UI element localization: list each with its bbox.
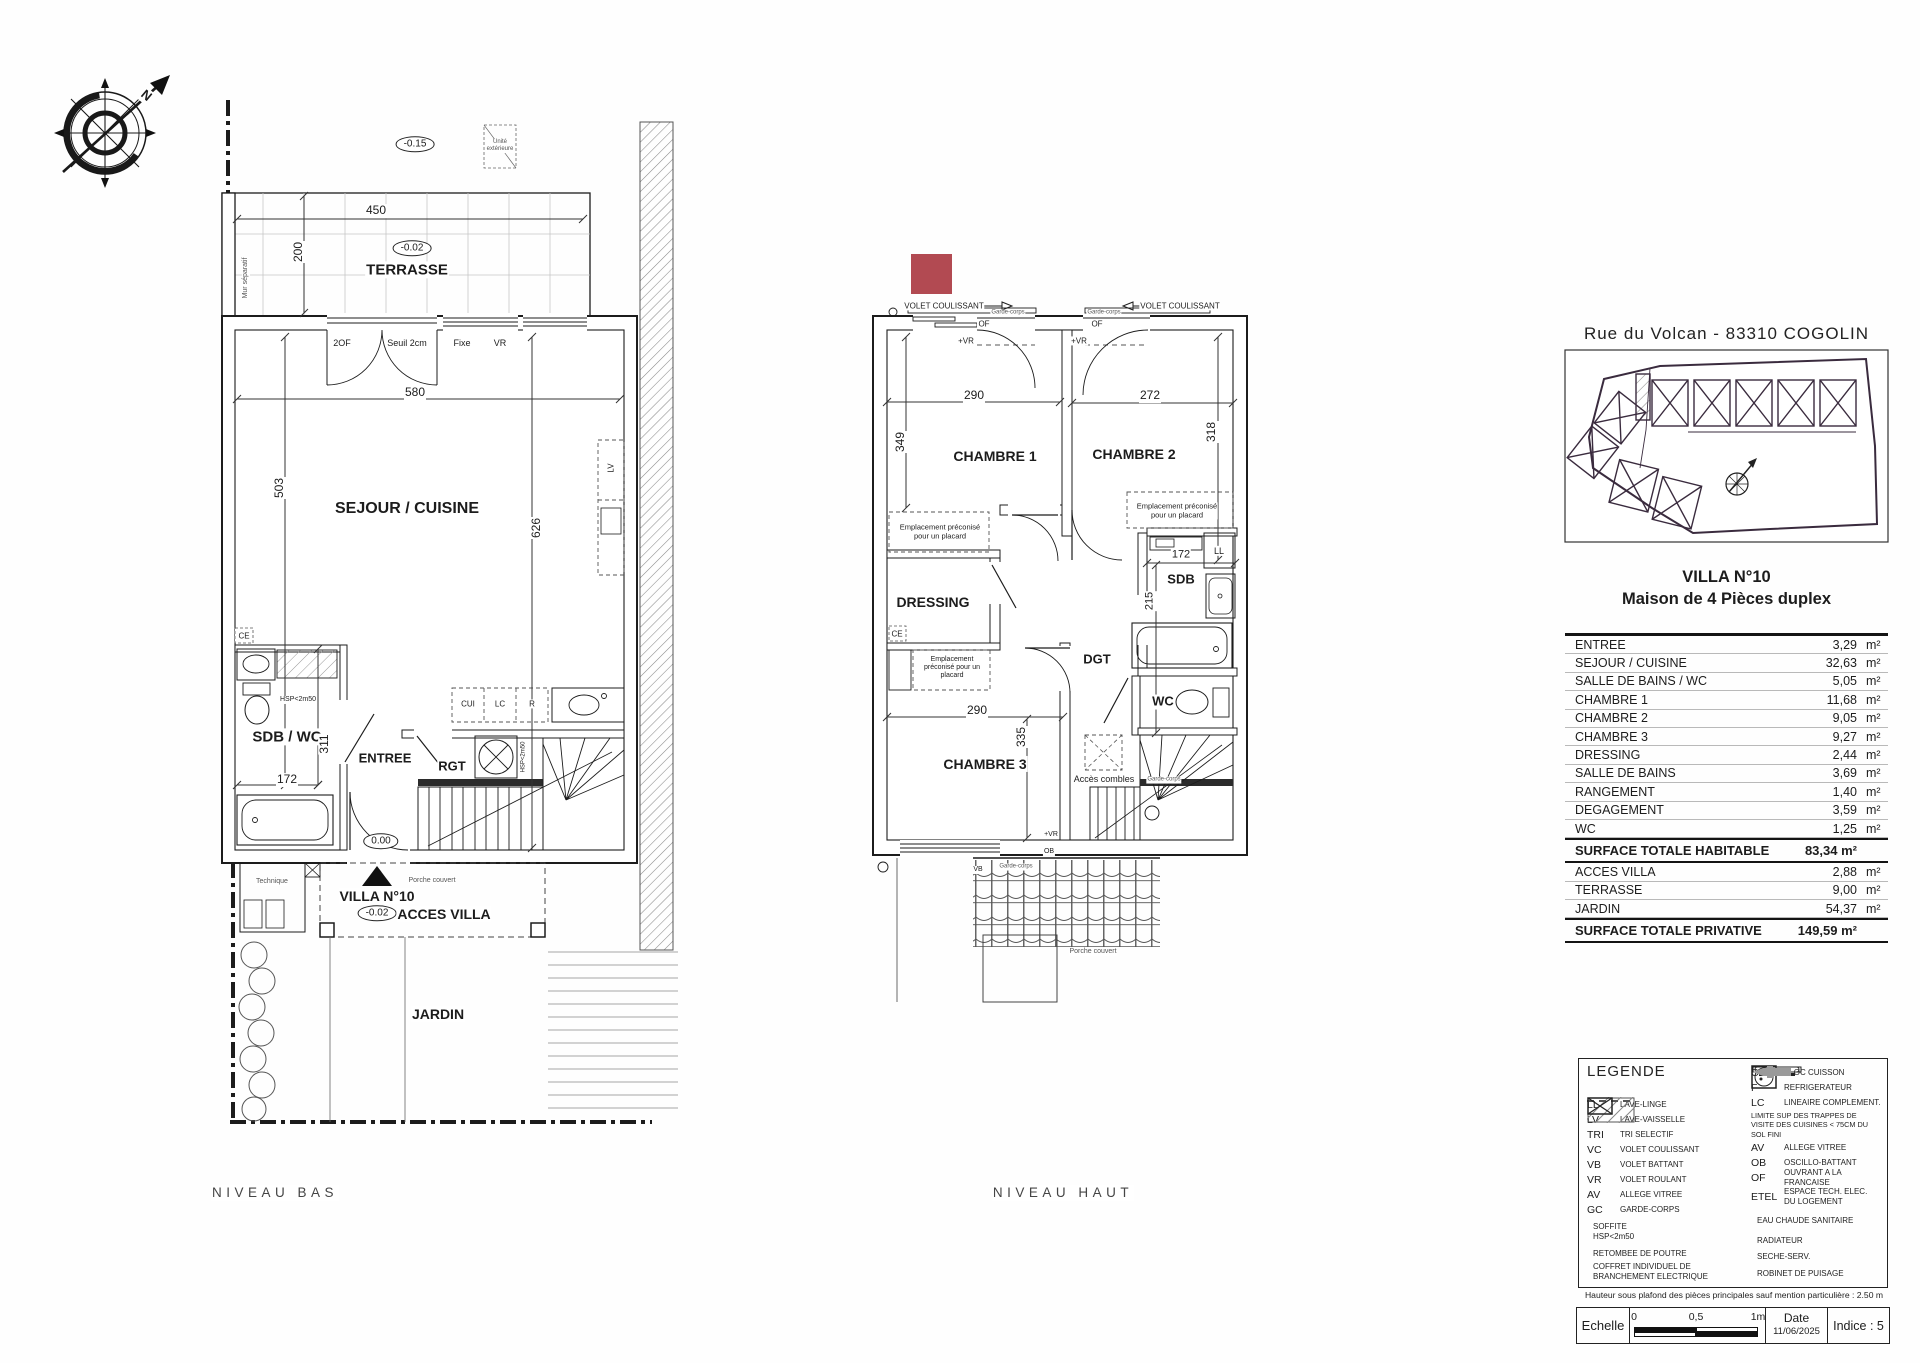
dim-label: 335 <box>1015 726 1029 748</box>
area-row: TERRASSE9,00m² <box>1565 882 1888 900</box>
scale-ruler-bar <box>1634 1327 1758 1338</box>
note-garde-corps: Garde-corps <box>990 310 1025 317</box>
opening-label: OF <box>1090 319 1103 328</box>
dim-label: 318 <box>1205 421 1219 443</box>
legend-note: LIMITE SUP DES TRAPPES DE VISITE DES CUI… <box>1751 1110 1885 1140</box>
dim-label: 215 <box>1144 591 1157 611</box>
opening-label: VB <box>972 866 983 874</box>
legend-item: COFFRET INDIVIDUEL DE BRANCHEMENT ELECTR… <box>1587 1261 1745 1283</box>
legend-desc: VOLET BATTANT <box>1620 1160 1684 1170</box>
legend-item: ROBINET DE PUISAGE <box>1751 1265 1885 1283</box>
opening-label: +VR <box>1070 336 1088 345</box>
legend-code: ETEL <box>1751 1191 1784 1203</box>
room-sdb-wc: SDB / WC <box>251 728 322 745</box>
legend-desc: ALLEGE VITREE <box>1784 1143 1846 1153</box>
legend-code: OF <box>1751 1172 1784 1184</box>
legend-code: AV <box>1751 1142 1784 1154</box>
legend-desc: VOLET COULISSANT <box>1620 1145 1699 1155</box>
room-wc: WC <box>1151 695 1175 710</box>
legend-desc: EAU CHAUDE SANITAIRE <box>1757 1216 1853 1226</box>
legend-item: ETELESPACE TECH. ELEC. DU LOGEMENT <box>1751 1185 1885 1209</box>
legend-desc: ROBINET DE PUISAGE <box>1757 1269 1844 1279</box>
legend-desc: ESPACE TECH. ELEC. DU LOGEMENT <box>1784 1187 1867 1206</box>
legend-desc: VOLET ROULANT <box>1620 1175 1687 1185</box>
elevation-marker: -0.15 <box>396 136 435 152</box>
dim-label: 172 <box>1171 549 1191 562</box>
area-row: JARDIN54,37m² <box>1565 900 1888 918</box>
note-garde-corps: Garde-corps <box>998 864 1033 871</box>
caption-niveau-haut: NIVEAU HAUT <box>992 1185 1134 1201</box>
legend-code: VR <box>1587 1174 1620 1186</box>
legend-item: RADIATEUR <box>1751 1233 1885 1249</box>
indice-label: Indice : 5 <box>1828 1308 1889 1343</box>
area-row: DEGAGEMENT3,59m² <box>1565 802 1888 820</box>
dim-label: 200 <box>292 241 306 263</box>
dim-label: 311 <box>318 733 332 754</box>
legend-code: TRI <box>1587 1129 1620 1141</box>
caption-niveau-bas: NIVEAU BAS <box>211 1185 339 1201</box>
note-hsp: HSP<2m50 <box>521 741 528 774</box>
opening-label: VOLET COULISSANT <box>1139 301 1220 310</box>
room-terrasse: TERRASSE <box>365 261 449 278</box>
scale-ruler: 00,51m <box>1630 1308 1766 1343</box>
area-row: ACCES VILLA2,88m² <box>1565 863 1888 881</box>
area-row: CHAMBRE 39,27m² <box>1565 728 1888 746</box>
legend-desc: GARDE-CORPS <box>1620 1205 1680 1215</box>
note-garde-corps: Garde-corps <box>1146 777 1181 784</box>
area-row: SALLE DE BAINS3,69m² <box>1565 765 1888 783</box>
note-technique: Technique <box>255 878 289 886</box>
date-cell: Date 11/06/2025 <box>1766 1308 1828 1343</box>
ceiling-height-note: Hauteur sous plafond des pièces principa… <box>1578 1290 1890 1300</box>
legend-item: SOFFITE HSP<2m50 <box>1587 1217 1745 1247</box>
room-sejour-cuisine: SEJOUR / CUISINE <box>334 500 480 518</box>
dim-label: 272 <box>1139 389 1161 403</box>
fixture-label: LC <box>494 699 506 708</box>
legend-item: SECHE-SERV. <box>1751 1249 1885 1265</box>
legend-item: LCLINEAIRE COMPLEMENT. <box>1751 1095 1885 1110</box>
note-porche: Porche couvert <box>1068 948 1117 956</box>
legend-code: VB <box>1587 1159 1620 1171</box>
legend-desc: TRI SELECTIF <box>1620 1130 1673 1140</box>
fixture-label: CE <box>890 629 903 638</box>
legend-item: VCVOLET COULISSANT <box>1587 1142 1745 1157</box>
area-row: SEJOUR / CUISINE32,63m² <box>1565 654 1888 672</box>
villa-entrance-label: VILLA N°10 <box>338 888 415 904</box>
area-table: ENTREE3,29m²SEJOUR / CUISINE32,63m²SALLE… <box>1565 633 1888 943</box>
opening-label: Seuil 2cm <box>386 338 428 348</box>
legend-desc: OUVRANT A LA FRANCAISE <box>1784 1168 1885 1187</box>
legend-item: AVALLEGE VITREE <box>1751 1140 1885 1155</box>
legend-code: VC <box>1587 1144 1620 1156</box>
scale-label: Echelle <box>1577 1308 1630 1343</box>
plan-niveau-haut <box>873 302 1247 1002</box>
dim-label: 349 <box>894 431 908 453</box>
legend-item: GCGARDE-CORPS <box>1587 1202 1745 1217</box>
scale-bar: Echelle 00,51m Date 11/06/2025 Indice : … <box>1576 1307 1890 1344</box>
room-rgt: RGT <box>437 760 466 775</box>
legend-box: LEGENDE LLLAVE-LINGELVLAVE-VAISSELLETRIT… <box>1578 1058 1888 1288</box>
legend-desc: OSCILLO-BATTANT <box>1784 1158 1857 1168</box>
opening-label: 2OF <box>332 338 352 348</box>
legend-code: AV <box>1587 1189 1620 1201</box>
site-address: Rue du Volcan - 83310 COGOLIN <box>1565 324 1888 344</box>
room-sdb: SDB <box>1166 573 1195 588</box>
legend-item: VBVOLET BATTANT <box>1587 1157 1745 1172</box>
opening-label: OB <box>1043 848 1055 856</box>
legend-desc: SECHE-SERV. <box>1757 1252 1810 1262</box>
legend-desc: COFFRET INDIVIDUEL DE BRANCHEMENT ELECTR… <box>1593 1262 1708 1281</box>
note-placard: Emplacement préconisé pour un placard <box>1136 502 1218 519</box>
room-chambre-2: CHAMBRE 2 <box>1091 446 1176 462</box>
scale-tick: 0 <box>1631 1311 1637 1323</box>
legend-item: AVALLEGE VITREE <box>1587 1187 1745 1202</box>
date-value: 11/06/2025 <box>1766 1326 1827 1337</box>
blueprint-page: N-0.15450200-0.02TERRASSEMur séparatifUn… <box>0 0 1920 1363</box>
area-row: WC1,25m² <box>1565 820 1888 838</box>
scale-tick: 0,5 <box>1689 1311 1704 1323</box>
opening-label: OF <box>977 319 990 328</box>
dim-label: 290 <box>966 704 988 718</box>
room-dressing: DRESSING <box>895 594 970 610</box>
legend-column-right: CUIBLOC CUISSONFREFRIGERATEURLCLINEAIRE … <box>1751 1065 1885 1283</box>
legend-code: GC <box>1587 1204 1620 1216</box>
note-garde-corps: Garde-corps <box>1086 310 1121 317</box>
area-row: ENTREE3,29m² <box>1565 636 1888 654</box>
area-total-row: SURFACE TOTALE PRIVATIVE149,59 m² <box>1565 918 1888 943</box>
opening-label: +VR <box>957 336 975 345</box>
legend-column-left: LLLAVE-LINGELVLAVE-VAISSELLETRITRI SELEC… <box>1587 1097 1745 1283</box>
opening-label: +VR <box>1043 831 1059 839</box>
area-row: SALLE DE BAINS / WC5,05m² <box>1565 673 1888 691</box>
room-acces-villa: ACCES VILLA <box>396 906 491 922</box>
legend-code: LC <box>1751 1097 1784 1109</box>
dim-label: 503 <box>273 477 287 499</box>
note-hsp: HSP<2m50 <box>279 696 317 704</box>
fixture-label: LV <box>606 462 615 473</box>
dim-label: 626 <box>530 517 544 539</box>
opening-label: VR <box>493 338 508 348</box>
elevation-marker: -0.02 <box>358 905 397 921</box>
red-marker <box>911 254 952 294</box>
room-chambre-3: CHAMBRE 3 <box>942 756 1027 772</box>
room-entree: ENTREE <box>358 752 413 767</box>
fixture-label: LL <box>1213 546 1225 556</box>
dim-label: 450 <box>365 204 387 218</box>
legend-desc: ALLEGE VITREE <box>1620 1190 1682 1200</box>
legend-item: TRITRI SELECTIF <box>1587 1127 1745 1142</box>
note-placard: Emplacement préconisé pour un placard <box>923 656 981 680</box>
note-placard: Emplacement préconisé pour un placard <box>899 523 981 540</box>
room-dgt: DGT <box>1082 653 1111 668</box>
elevation-marker: 0.00 <box>363 833 398 849</box>
area-row: CHAMBRE 29,05m² <box>1565 710 1888 728</box>
legend-desc: SOFFITE HSP<2m50 <box>1593 1222 1634 1241</box>
legend-code: OB <box>1751 1157 1784 1169</box>
opening-label: Fixe <box>452 338 471 348</box>
legend-item: VRVOLET ROULANT <box>1587 1172 1745 1187</box>
fixture-label: CUI <box>460 699 476 708</box>
fixture-label: R <box>528 699 536 708</box>
legend-item: RETOMBEE DE POUTRE <box>1587 1247 1745 1261</box>
area-total-row: SURFACE TOTALE HABITABLE83,34 m² <box>1565 838 1888 863</box>
legend-item: EAU CHAUDE SANITAIRE <box>1751 1209 1885 1233</box>
opening-label: VOLET COULISSANT <box>903 301 984 310</box>
note-acces-combles: Accès combles <box>1073 774 1136 784</box>
legend-desc: REFRIGERATEUR <box>1784 1083 1852 1093</box>
fixture-label: CE <box>237 631 250 640</box>
legend-desc: RETOMBEE DE POUTRE <box>1593 1249 1687 1259</box>
note-mur-separatif: Mur séparatif <box>242 257 250 300</box>
note-unite-exterieure: Unité extérieure <box>486 139 515 153</box>
dim-label: 290 <box>963 389 985 403</box>
elevation-marker: -0.02 <box>393 240 432 256</box>
villa-title: VILLA N°10 <box>1565 568 1888 587</box>
dim-label: 580 <box>404 386 426 400</box>
date-label: Date <box>1766 1311 1827 1325</box>
dim-label: 172 <box>276 773 298 787</box>
area-row: RANGEMENT1,40m² <box>1565 783 1888 801</box>
legend-item: OFOUVRANT A LA FRANCAISE <box>1751 1170 1885 1185</box>
room-jardin: JARDIN <box>411 1006 465 1022</box>
room-chambre-1: CHAMBRE 1 <box>952 448 1037 464</box>
scale-tick: 1m <box>1751 1311 1766 1323</box>
legend-desc: LINEAIRE COMPLEMENT. <box>1784 1098 1880 1108</box>
site-map <box>1565 350 1888 542</box>
villa-subtitle: Maison de 4 Pièces duplex <box>1565 590 1888 609</box>
area-row: DRESSING2,44m² <box>1565 746 1888 764</box>
area-row: CHAMBRE 111,68m² <box>1565 691 1888 709</box>
legend-desc: RADIATEUR <box>1757 1236 1803 1246</box>
legend-title: LEGENDE <box>1587 1063 1666 1080</box>
note-porche: Porche couvert <box>407 877 456 885</box>
